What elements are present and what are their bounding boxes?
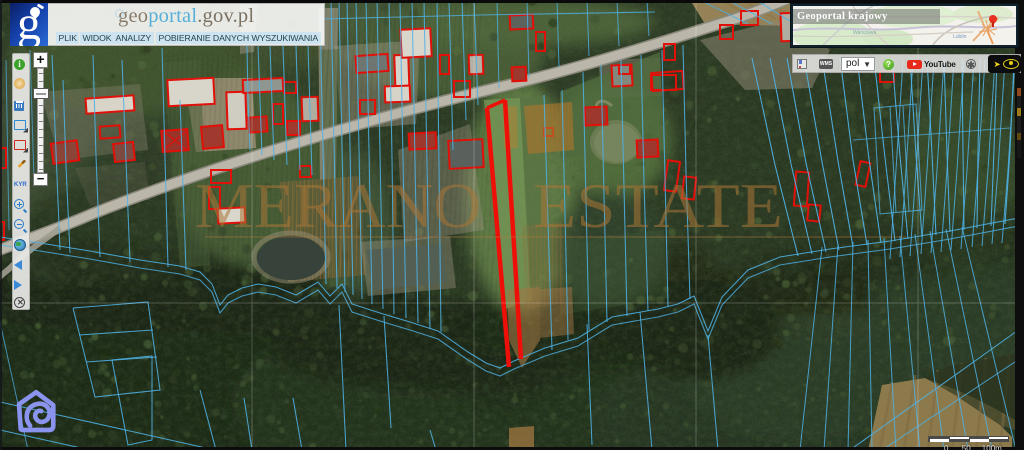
- svg-text:Lublin: Lublin: [953, 34, 967, 40]
- svg-text:Warszawa: Warszawa: [853, 30, 876, 36]
- svg-text:ESTATE: ESTATE: [533, 170, 783, 241]
- svg-text:MERANO: MERANO: [195, 170, 481, 241]
